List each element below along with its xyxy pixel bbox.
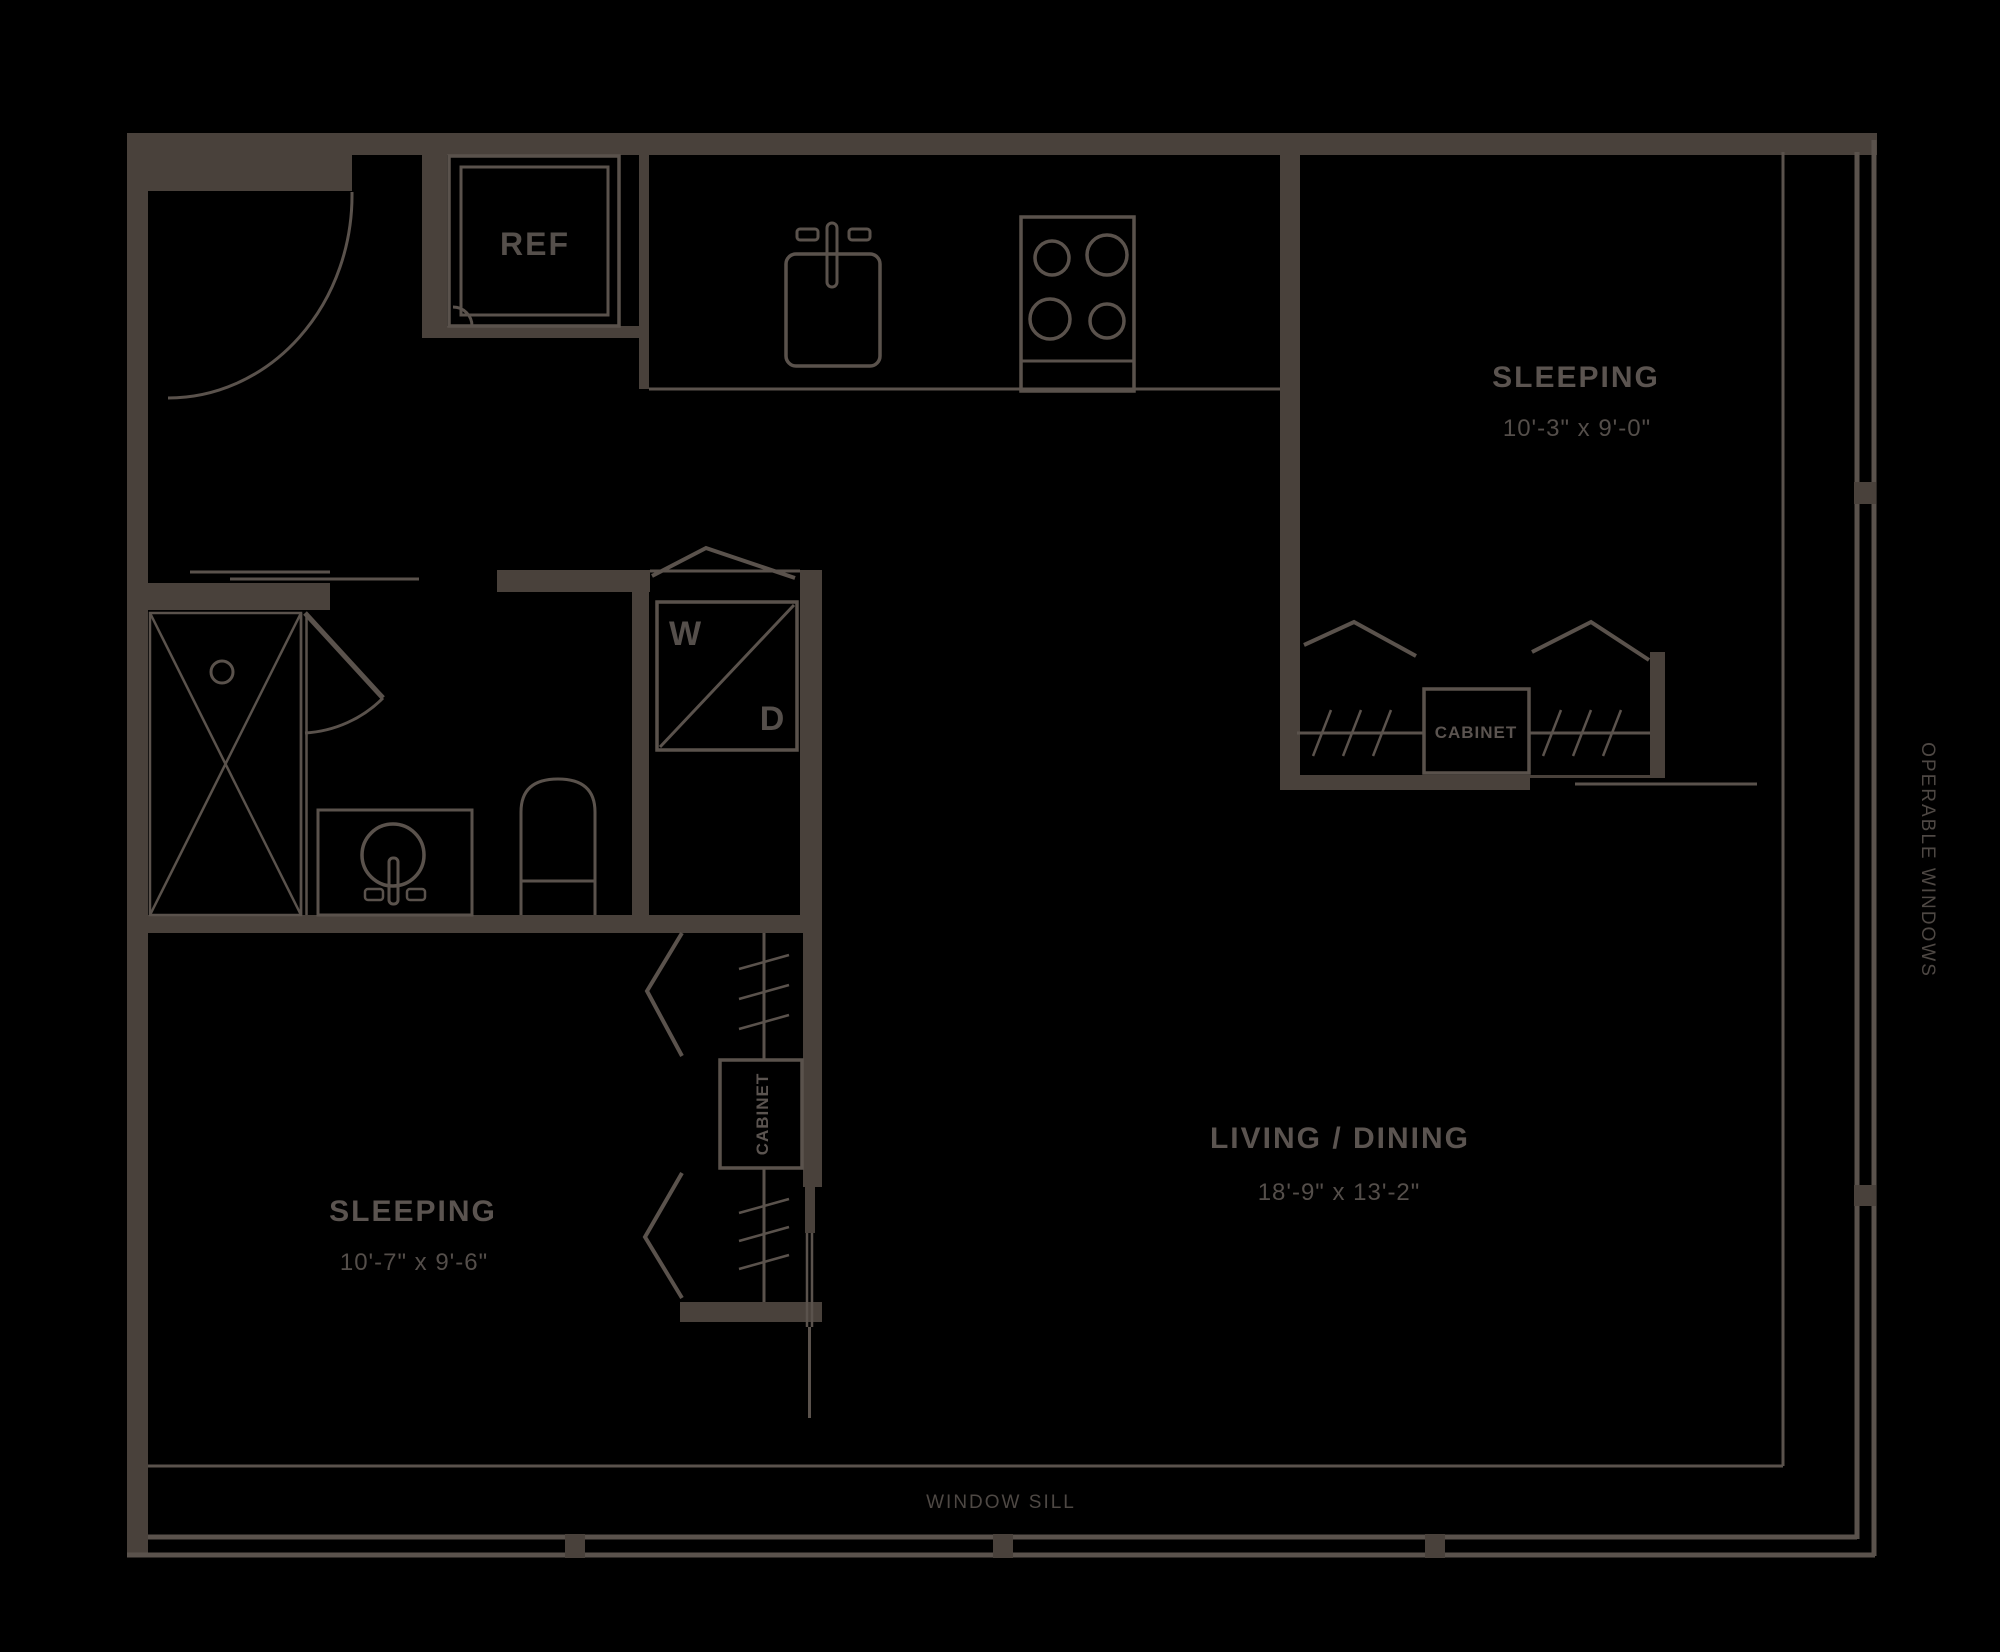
refrigerator-label: REF <box>500 226 570 262</box>
bedroom-1: CABINET SLEEPING 10'-3" x 9'-0" <box>1280 155 1757 790</box>
toilet <box>521 779 595 915</box>
bedroom2-door-jamb <box>805 1187 815 1233</box>
closet-bifold-door-icon <box>1304 622 1416 656</box>
cabinet-label: CABINET <box>1435 723 1518 742</box>
entry-door-swing-arc <box>168 192 352 398</box>
bathroom-south-wall <box>127 915 822 933</box>
sink-basin <box>786 254 880 366</box>
shower-drain <box>211 661 233 683</box>
floor-plan-page: REF <box>0 0 2000 1652</box>
bedroom-2: CABINET SLEEPING 10'-7" x 9'-6" <box>329 930 822 1418</box>
floor-plan-drawing: REF <box>0 0 2000 1652</box>
bedroom1-west-wall <box>1280 155 1300 790</box>
bathroom-north-wall <box>148 583 330 610</box>
kitchen <box>649 217 1280 391</box>
vanity-handle-left <box>365 889 383 900</box>
bedroom2-dimensions: 10'-7" x 9'-6" <box>340 1249 488 1276</box>
burner <box>1035 241 1069 275</box>
operable-windows-label: OPERABLE WINDOWS <box>1917 742 1938 978</box>
dryer-label: D <box>760 700 785 738</box>
living-dining-dimensions: 18'-9" x 13'-2" <box>1258 1179 1421 1206</box>
bedroom2-label: SLEEPING <box>329 1195 497 1228</box>
mullion <box>565 1534 585 1558</box>
wd-west-wall <box>632 570 649 920</box>
closet-bifold-door-icon <box>645 1173 682 1298</box>
living-dining-label: LIVING / DINING <box>1210 1122 1470 1155</box>
sink-handle-right <box>849 229 870 240</box>
bathroom-door-leaf <box>305 613 383 698</box>
bathroom-north-wall-east <box>497 570 650 592</box>
mullion <box>1854 1185 1876 1206</box>
washer-dryer-closet: W D <box>632 548 822 933</box>
bedroom1-label: SLEEPING <box>1492 361 1660 394</box>
living-dining: LIVING / DINING 18'-9" x 13'-2" <box>1210 1122 1470 1206</box>
refrigerator-nook: REF <box>422 155 649 389</box>
sink-handle-left <box>797 229 818 240</box>
outer-walls <box>127 133 1877 1558</box>
closet-bifold-door-icon <box>1532 622 1649 660</box>
mullion <box>1425 1534 1445 1558</box>
bedroom2-east-wall <box>803 930 822 1187</box>
mullion <box>993 1534 1013 1558</box>
vanity-basin <box>362 824 424 886</box>
window-sill-label: WINDOW SILL <box>926 1492 1076 1513</box>
bedroom2-closet-south-wall <box>680 1302 822 1322</box>
toilet-outline <box>521 779 595 915</box>
wd-bifold-door-icon <box>652 548 795 578</box>
entry-header-wall <box>127 155 352 191</box>
ref-base-wall <box>422 326 649 338</box>
vanity-faucet <box>389 858 398 904</box>
ref-east-wall <box>639 155 649 389</box>
wd-east-wall <box>800 570 822 933</box>
cabinet-label: CABINET <box>753 1073 772 1156</box>
vanity <box>318 810 472 915</box>
burner <box>1090 304 1124 338</box>
burner <box>1030 299 1070 339</box>
bedroom1-closet-stub-wall <box>1650 652 1665 775</box>
vanity-handle-right <box>407 889 425 900</box>
closet-bifold-door-icon <box>647 933 682 1056</box>
bathroom-door-swing-arc <box>305 698 383 733</box>
shower <box>150 613 307 915</box>
stove <box>1021 217 1134 391</box>
washer-label: W <box>669 615 702 653</box>
mullion <box>1854 482 1876 504</box>
west-wall <box>127 133 148 1556</box>
north-wall <box>127 133 1877 155</box>
burner <box>1087 235 1127 275</box>
entry <box>168 192 352 398</box>
kitchen-sink <box>786 223 880 366</box>
bedroom1-dimensions: 10'-3" x 9'-0" <box>1503 415 1651 442</box>
ref-west-wall <box>422 155 447 336</box>
